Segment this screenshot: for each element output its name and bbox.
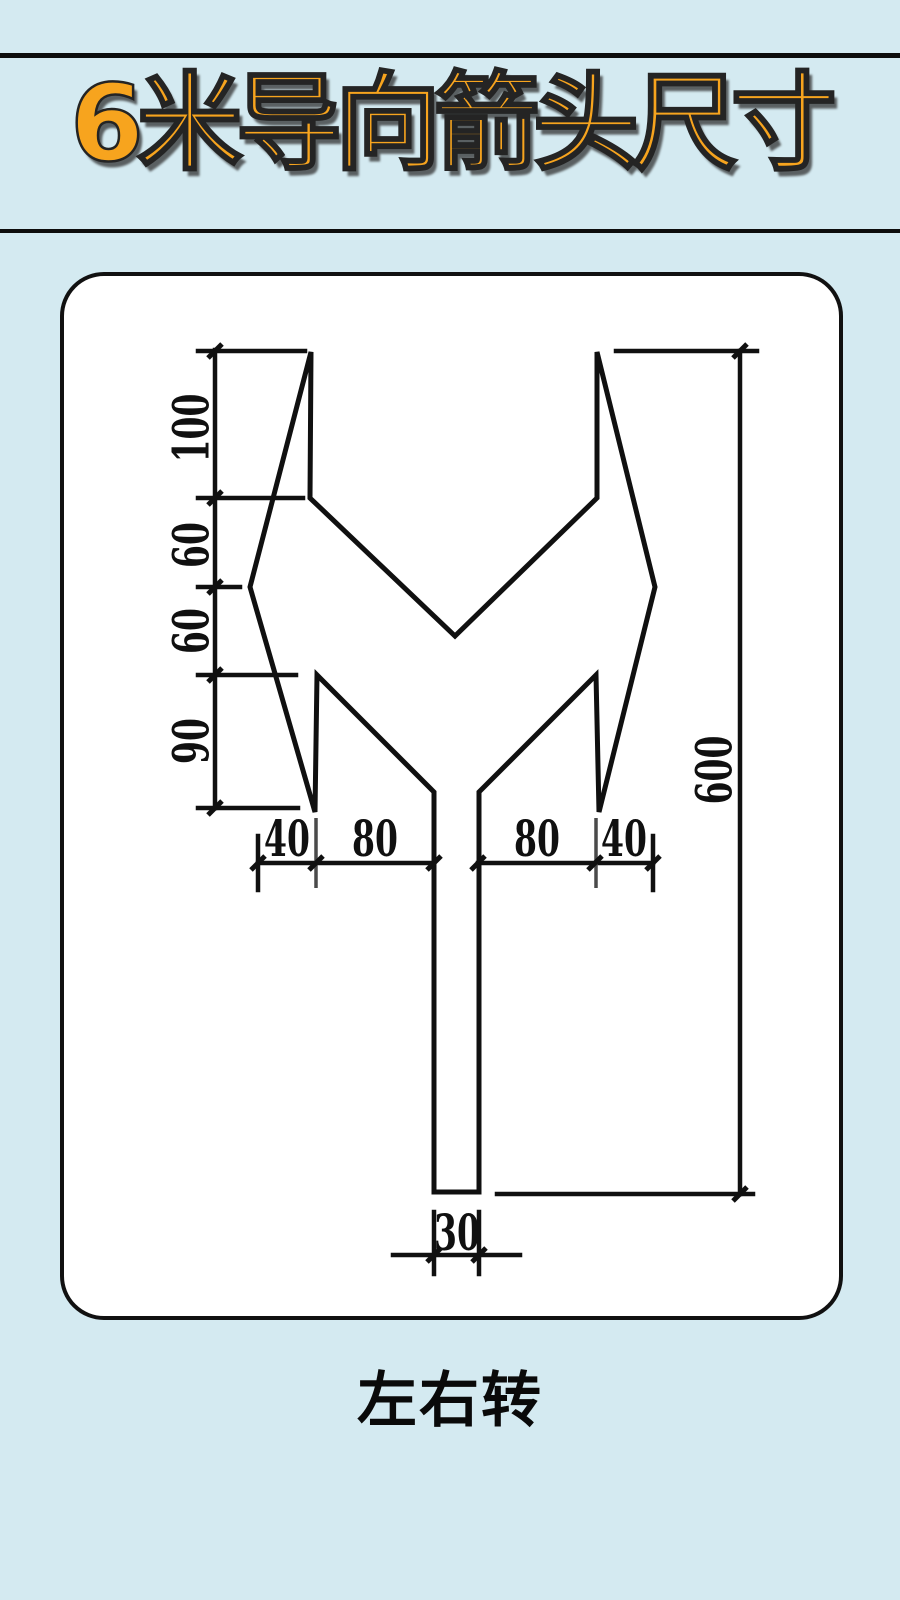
page-background: 6米导向箭头尺寸 [0,0,900,1600]
dim-label-40-right: 40 [601,809,647,868]
dim-label-80-left: 80 [352,809,398,868]
diagram-caption: 左右转 [0,1352,900,1439]
dim-label-40-left: 40 [264,809,310,868]
dim-label-60-upper: 60 [161,522,220,568]
arrow-outline-shape [250,352,655,1192]
header-bottom-divider [0,229,900,233]
dim-label-600: 600 [684,736,743,805]
dim-label-60-lower: 60 [161,608,220,654]
header-title: 6米导向箭头尺寸 [0,66,900,183]
dim-label-80-right: 80 [514,809,560,868]
technical-drawing-svg: 100 60 60 90 600 40 80 80 40 30 [60,272,843,1320]
diagram-card: 100 60 60 90 600 40 80 80 40 30 [60,272,843,1320]
dim-label-30: 30 [434,1203,480,1262]
header-top-divider [0,53,900,58]
dim-label-90: 90 [161,718,220,764]
dim-label-100: 100 [161,394,220,463]
